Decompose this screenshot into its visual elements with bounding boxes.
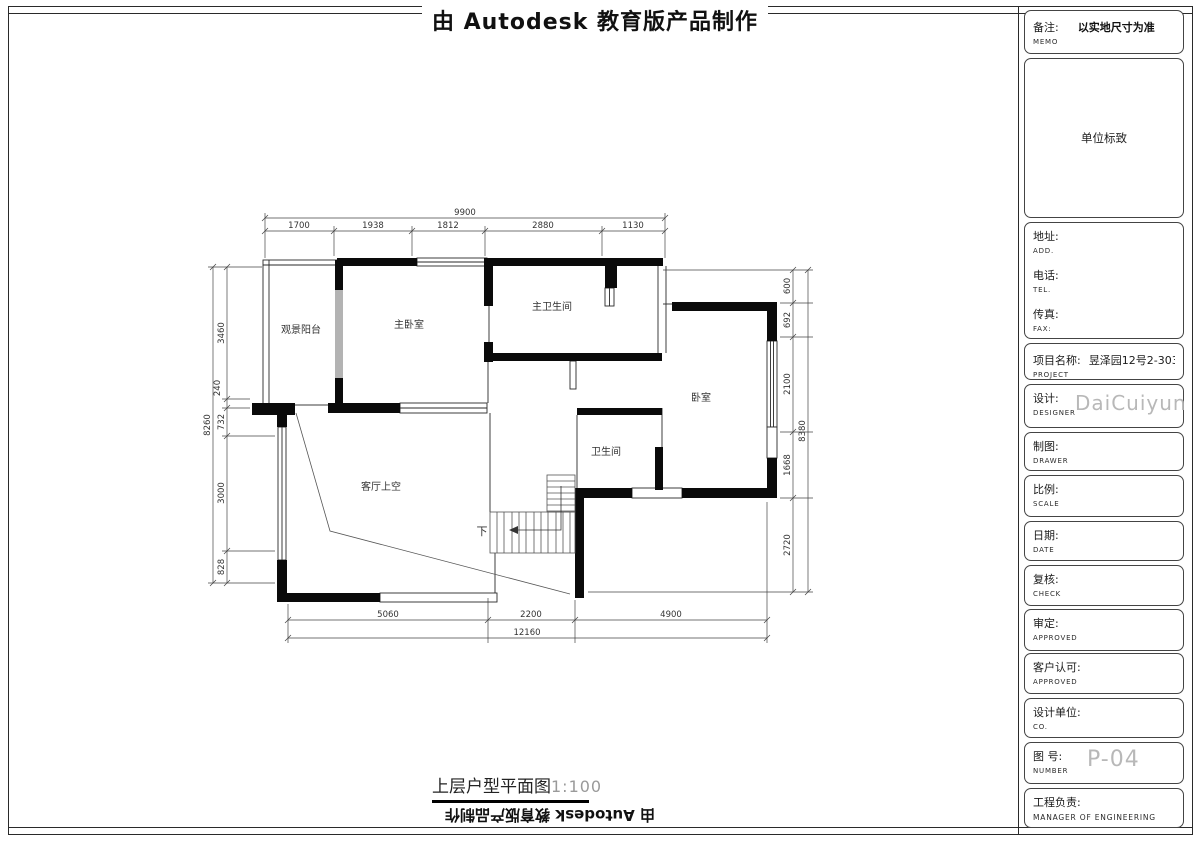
contact-address: 地址: ADD. <box>1033 228 1175 255</box>
tel-label: 电话: <box>1033 267 1175 283</box>
room-label-living-void: 客厅上空 <box>361 480 401 493</box>
client-label: 客户认可: <box>1033 659 1175 675</box>
dim-top-0: 1700 <box>288 221 310 231</box>
dim-top-1: 1938 <box>362 221 384 231</box>
autodesk-banner-bottom-text: 由 Autodesk 教育版产品制作 <box>441 806 659 827</box>
dim-right-1: 692 <box>783 312 793 328</box>
room-label-balcony: 观景阳台 <box>281 323 321 336</box>
company-label: 设计单位: <box>1033 704 1175 720</box>
titleblock-drawer: 制图: DRAWER <box>1024 432 1184 471</box>
scale-label: 比例: <box>1033 481 1175 497</box>
dim-left-total: 8260 <box>203 414 213 436</box>
fax-sublabel: FAX: <box>1033 325 1175 333</box>
dim-right-3: 1668 <box>783 454 793 476</box>
dim-bottom-total: 12160 <box>513 628 540 638</box>
contact-fax: 传真: FAX: <box>1033 306 1175 333</box>
titleblock-contact: 地址: ADD. 电话: TEL. 传真: FAX: <box>1024 222 1184 339</box>
titleblock-date: 日期: DATE <box>1024 521 1184 561</box>
titleblock-client: 客户认可: APPROVED <box>1024 653 1184 694</box>
dim-bottom-2: 4900 <box>660 610 682 620</box>
plan-title: 上层户型平面图 <box>432 777 551 797</box>
stairs <box>490 475 575 553</box>
date-label: 日期: <box>1033 527 1175 543</box>
dim-top-4: 1130 <box>622 221 644 231</box>
memo-value: 以实地尺寸为准 <box>1078 21 1155 34</box>
dimension-text: 9900 1700 1938 1812 2880 1130 8260 3460 … <box>203 208 808 638</box>
room-label-bedroom: 卧室 <box>691 391 711 404</box>
balcony-window <box>335 290 343 378</box>
room-labels: 观景阳台 主卧室 主卫生间 卧室 卫生间 客厅上空 下 <box>281 300 711 538</box>
dim-right-2: 2100 <box>783 373 793 395</box>
dim-right-4: 2720 <box>783 534 793 556</box>
plan-scale: 1:100 <box>551 777 602 796</box>
titleblock-scale: 比例: SCALE <box>1024 475 1184 517</box>
fax-label: 传真: <box>1033 306 1175 322</box>
void-diagonal <box>296 413 570 594</box>
drawer-label: 制图: <box>1033 438 1175 454</box>
dim-bottom-1: 2200 <box>520 610 542 620</box>
client-sublabel: APPROVED <box>1033 678 1175 686</box>
scale-sublabel: SCALE <box>1033 500 1175 508</box>
titleblock-memo: 备注: 以实地尺寸为准 MEMO <box>1024 10 1184 54</box>
number-value: P-04 <box>1087 747 1140 772</box>
titleblock-divider <box>1018 6 1019 834</box>
address-label: 地址: <box>1033 228 1175 244</box>
dim-top-total: 9900 <box>454 208 476 218</box>
contact-tel: 电话: TEL. <box>1033 267 1175 294</box>
project-sublabel: PROJECT <box>1033 371 1175 379</box>
drawer-sublabel: DRAWER <box>1033 457 1175 465</box>
designer-value: DaiCuiyun <box>1075 391 1187 415</box>
project-value: 昱泽园12号2-303— <box>1089 354 1175 367</box>
dim-top-3: 2880 <box>532 221 554 231</box>
dim-left-4: 828 <box>217 559 227 575</box>
tel-sublabel: TEL. <box>1033 286 1175 294</box>
titleblock-company: 设计单位: CO. <box>1024 698 1184 738</box>
dim-right-total: 8380 <box>798 420 808 442</box>
manager-sublabel: MANAGER OF ENGINEERING <box>1033 813 1175 822</box>
room-label-bath: 卫生间 <box>591 445 621 458</box>
memo-sublabel: MEMO <box>1033 38 1175 46</box>
titleblock-check: 复核: CHECK <box>1024 565 1184 606</box>
logo-text: 单位标致 <box>1081 130 1127 146</box>
titleblock-project: 项目名称: 昱泽园12号2-303— PROJECT <box>1024 343 1184 380</box>
titleblock-designer: 设计: DaiCuiyun DESIGNER <box>1024 384 1184 428</box>
check-sublabel: CHECK <box>1033 590 1175 598</box>
floor-plan-canvas: 观景阳台 主卧室 主卫生间 卧室 卫生间 客厅上空 下 <box>0 0 1016 843</box>
approve-label: 审定: <box>1033 615 1175 631</box>
solid-walls <box>252 258 777 602</box>
check-label: 复核: <box>1033 571 1175 587</box>
memo-label: 备注: <box>1033 21 1059 34</box>
dim-left-2: 732 <box>217 414 227 430</box>
plan-caption: 上层户型平面图1:100 <box>432 772 602 797</box>
autodesk-banner-bottom: 由 Autodesk 教育版产品制作 <box>444 804 656 828</box>
titleblock-approve: 审定: APPROVED <box>1024 609 1184 651</box>
titleblock-manager: 工程负责: MANAGER OF ENGINEERING <box>1024 788 1184 828</box>
manager-label: 工程负责: <box>1033 794 1175 810</box>
titleblock-logo: 单位标致 <box>1024 58 1184 218</box>
approve-sublabel: APPROVED <box>1033 634 1175 642</box>
company-sublabel: CO. <box>1033 723 1175 731</box>
address-sublabel: ADD. <box>1033 247 1175 255</box>
dim-top-2: 1812 <box>437 221 459 231</box>
project-label: 项目名称: <box>1033 354 1081 367</box>
room-label-master-bedroom: 主卧室 <box>394 318 424 331</box>
dim-left-0: 3460 <box>217 322 227 344</box>
stairs-direction-arrow <box>509 526 518 534</box>
dim-right-0: 600 <box>783 278 793 294</box>
dim-left-1: 240 <box>213 380 223 396</box>
date-sublabel: DATE <box>1033 546 1175 554</box>
room-label-master-bath: 主卫生间 <box>532 300 572 313</box>
titleblock-number: 图 号: P-04 NUMBER <box>1024 742 1184 784</box>
plan-title-underline <box>432 800 589 803</box>
stairs-down-label: 下 <box>477 525 488 538</box>
dim-left-3: 3000 <box>217 482 227 504</box>
dim-bottom-0: 5060 <box>377 610 399 620</box>
